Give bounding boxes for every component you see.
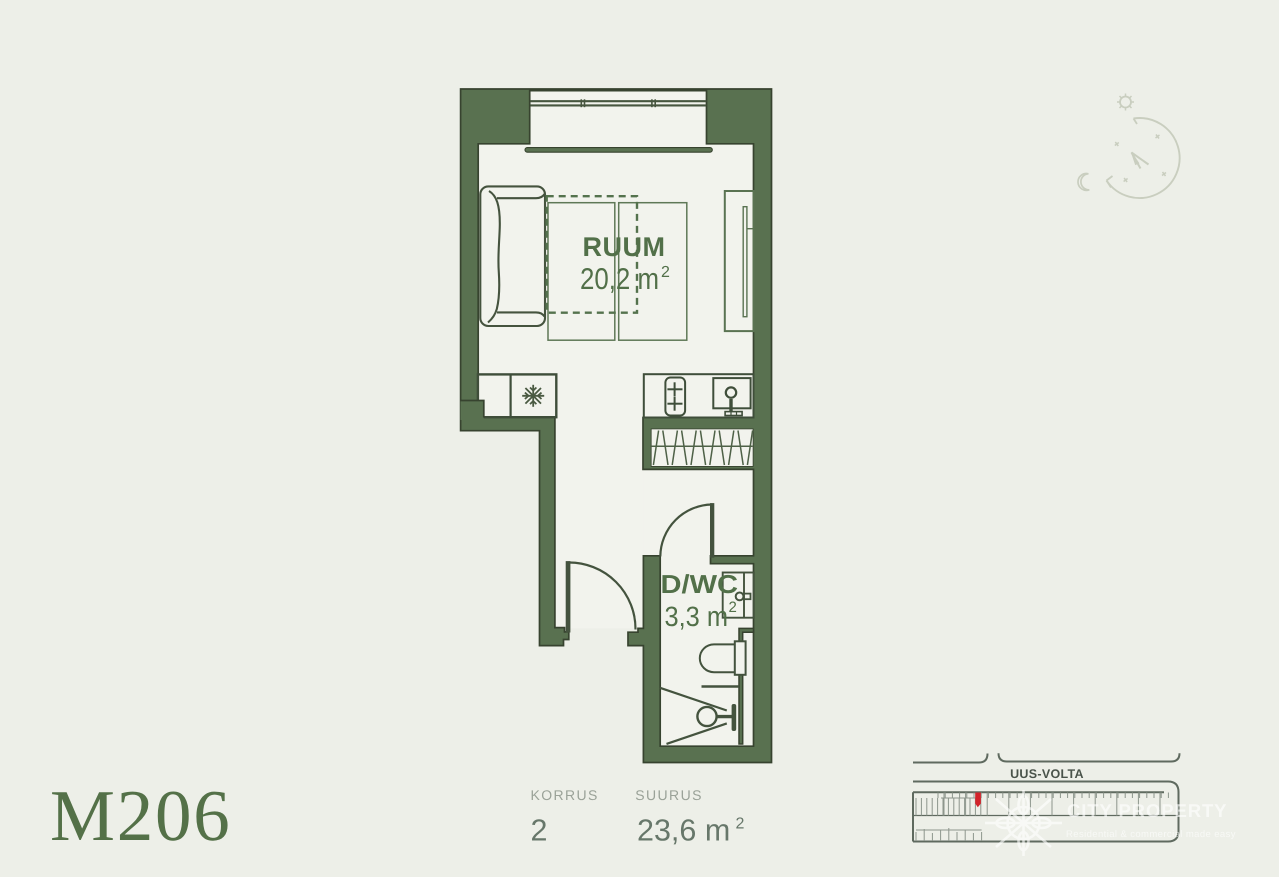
svg-text:M206: M206 bbox=[50, 775, 232, 856]
svg-text:2: 2 bbox=[729, 599, 737, 616]
svg-text:D/WC: D/WC bbox=[661, 569, 739, 599]
svg-text:CITY PROPERTY: CITY PROPERTY bbox=[1067, 800, 1227, 821]
svg-text:KORRUS: KORRUS bbox=[531, 787, 599, 803]
svg-text:UUS-VOLTA: UUS-VOLTA bbox=[1010, 767, 1084, 781]
svg-text:SUURUS: SUURUS bbox=[635, 787, 703, 803]
svg-text:2: 2 bbox=[531, 814, 548, 848]
svg-text:Residential & commercial made: Residential & commercial made easy bbox=[1066, 829, 1236, 840]
svg-text:2: 2 bbox=[736, 816, 745, 833]
svg-text:RUUM: RUUM bbox=[583, 232, 666, 262]
svg-text:2: 2 bbox=[661, 264, 670, 281]
svg-text:23,6 m: 23,6 m bbox=[637, 814, 730, 848]
svg-text:3,3 m: 3,3 m bbox=[665, 601, 729, 632]
svg-text:20,2 m: 20,2 m bbox=[580, 263, 659, 296]
